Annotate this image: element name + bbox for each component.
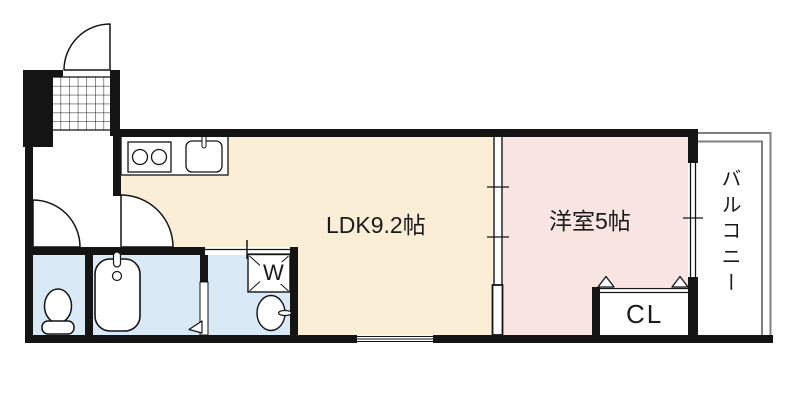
balcony-label: バルコニー	[719, 168, 739, 298]
closet-label: CL	[626, 301, 663, 327]
sink-icon	[186, 135, 222, 172]
ldk-room-label: LDK9.2帖	[326, 214, 426, 237]
bathtub-icon	[95, 252, 140, 331]
toilet-icon	[42, 289, 74, 334]
partition-panel	[493, 285, 503, 335]
entrance-door-arc	[64, 24, 110, 70]
kitchen-counter	[121, 135, 228, 175]
floor-plan-canvas: LDK9.2帖 洋室5帖 CL W バルコニー	[0, 0, 800, 404]
floor-plan-drawing	[0, 0, 800, 404]
stove-icon	[128, 142, 171, 172]
washer-label: W	[260, 262, 287, 284]
bedroom-room-label: 洋室5帖	[549, 210, 631, 233]
entrance-tile-grid	[52, 77, 112, 130]
ldk-window	[357, 335, 433, 343]
toilet-door-arc	[33, 200, 80, 247]
